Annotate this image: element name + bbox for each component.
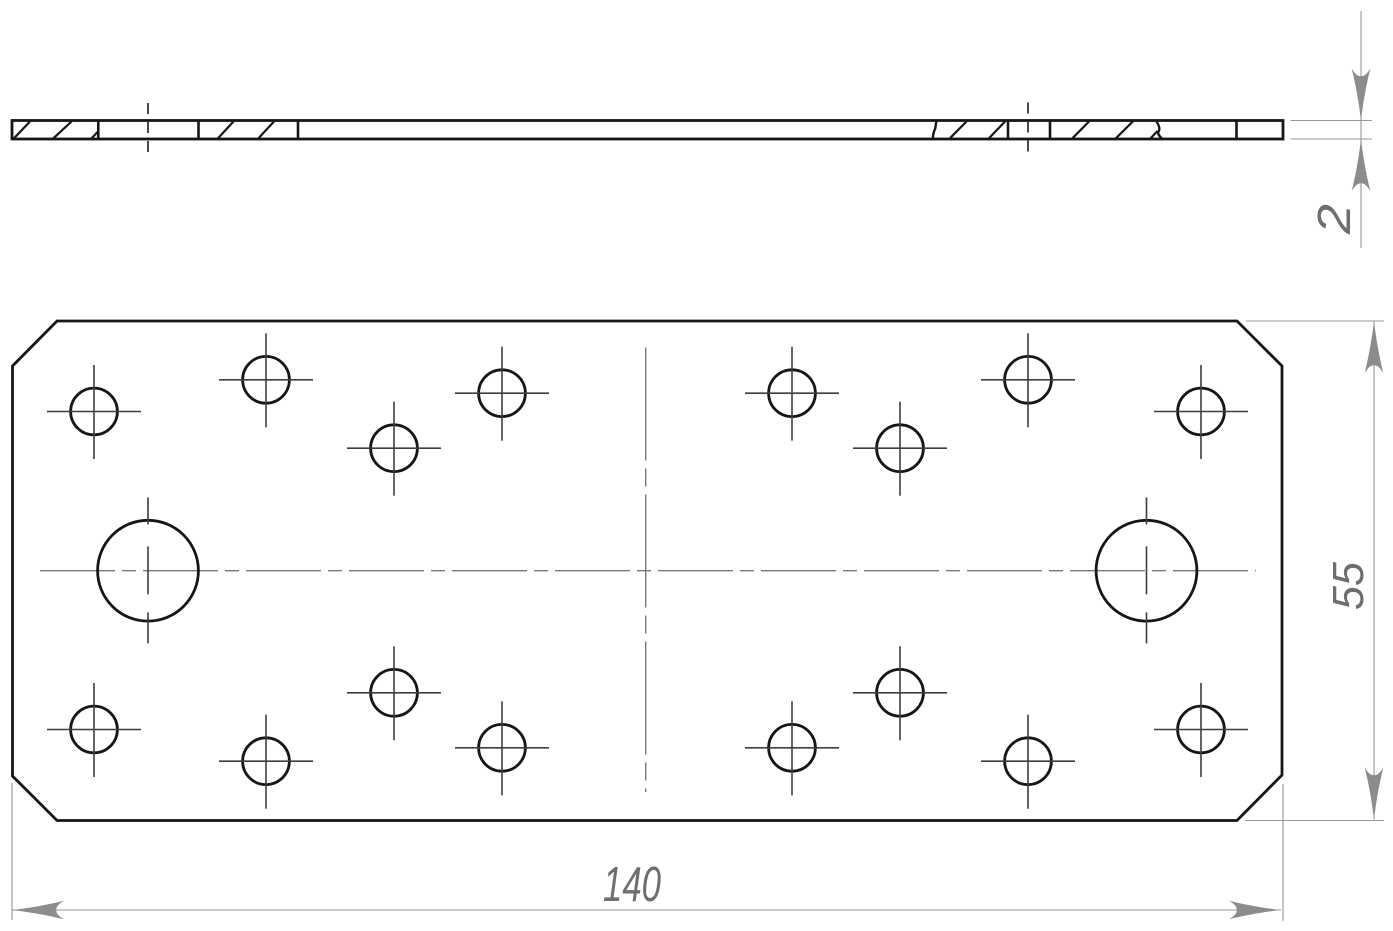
svg-text:55: 55 <box>1324 561 1373 610</box>
svg-text:2: 2 <box>1308 204 1360 235</box>
svg-text:140: 140 <box>603 858 661 912</box>
